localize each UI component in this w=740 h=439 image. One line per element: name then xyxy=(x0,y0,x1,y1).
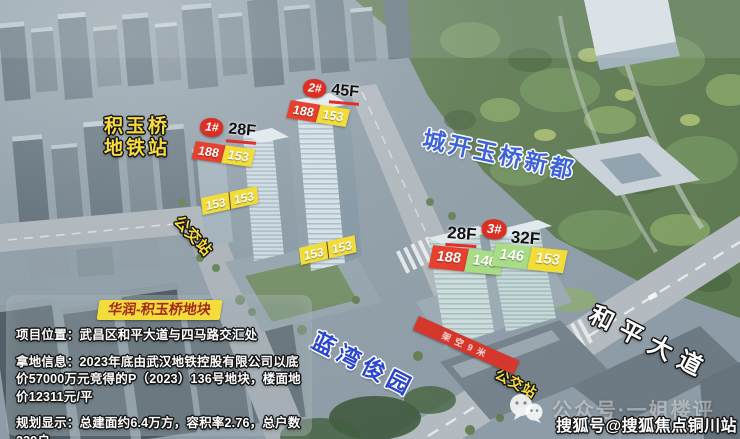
panel-title-badge: 华润-积玉桥地块 xyxy=(96,300,222,320)
wechat-icon xyxy=(508,393,544,423)
panel-line-planning: 规划显示：总建面约6.4万方，容积率2.76，总户数239户 xyxy=(6,415,312,439)
metro-station-line2: 地铁站 xyxy=(104,138,170,160)
panel-line-label: 规划显示： xyxy=(16,416,80,430)
tower2-floors: 45F xyxy=(329,80,360,105)
tower1-annotation: 1# 28F xyxy=(199,117,258,145)
tower3-number-badge: 3# xyxy=(481,218,507,240)
panel-line-label: 拿地信息： xyxy=(16,355,80,369)
sohu-watermark: 搜狐号@搜狐焦点铜川站 xyxy=(556,412,737,436)
tower2-annotation: 2# 45F xyxy=(302,78,361,106)
tower1-floors: 28F xyxy=(226,119,257,144)
panel-line-label: 项目位置： xyxy=(16,328,80,342)
tower3-floors-left: 28F xyxy=(445,222,478,248)
panel-line-location: 项目位置：武昌区和平大道与四马路交汇处 xyxy=(6,327,312,345)
panel-line-land-info: 拿地信息：2023年底由武汉地铁控股有限公司以底价57000万元竞得的P（202… xyxy=(6,354,312,407)
tower1-number-badge: 1# xyxy=(199,117,224,138)
area-tag: 188 xyxy=(428,245,469,271)
metro-station-line1: 积玉桥 xyxy=(104,116,170,138)
info-panel: 华润-积玉桥地块 项目位置：武昌区和平大道与四马路交汇处 拿地信息：2023年底… xyxy=(6,295,312,436)
tower2-number-badge: 2# xyxy=(302,78,327,99)
metro-station-label: 积玉桥 地铁站 xyxy=(104,116,170,161)
aerial-screenshot: 积玉桥 地铁站 1# 28F 188 153 2# 45F 188 153 城开… xyxy=(0,0,740,439)
area-tag: 146 xyxy=(491,243,532,269)
area-tag: 153 xyxy=(527,247,568,273)
panel-line-text: 武昌区和平大道与四马路交汇处 xyxy=(80,328,258,342)
